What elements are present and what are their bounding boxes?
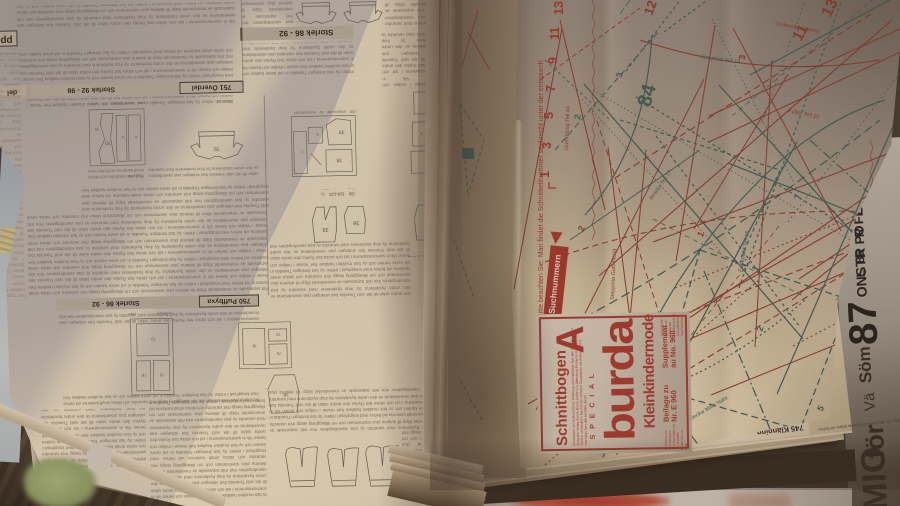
svg-text:39: 39 [94, 127, 99, 132]
svg-text:73: 73 [275, 332, 280, 337]
svg-text:13: 13 [552, 1, 566, 15]
svg-text:1: 1 [538, 171, 552, 178]
svg-text:38: 38 [353, 219, 359, 225]
svg-text:a: a [122, 135, 125, 140]
svg-text:38: 38 [336, 157, 342, 163]
svg-text:a: a [135, 135, 138, 140]
svg-text:78: 78 [141, 373, 146, 378]
svg-text:5: 5 [542, 112, 556, 119]
svg-text:39: 39 [214, 145, 220, 151]
svg-text:79: 79 [151, 337, 156, 342]
svg-text:75: 75 [276, 351, 281, 356]
svg-text:11: 11 [548, 27, 562, 40]
svg-text:78: 78 [252, 343, 257, 348]
svg-text:7: 7 [544, 85, 558, 92]
svg-text:79: 79 [159, 372, 164, 377]
svg-text:39: 39 [322, 226, 328, 232]
svg-text:9: 9 [546, 57, 560, 64]
svg-text:39: 39 [105, 139, 111, 145]
svg-text:b: b [315, 132, 318, 137]
svg-text:3: 3 [540, 142, 554, 149]
svg-text:c: c [301, 149, 303, 154]
svg-text:39: 39 [339, 129, 345, 135]
